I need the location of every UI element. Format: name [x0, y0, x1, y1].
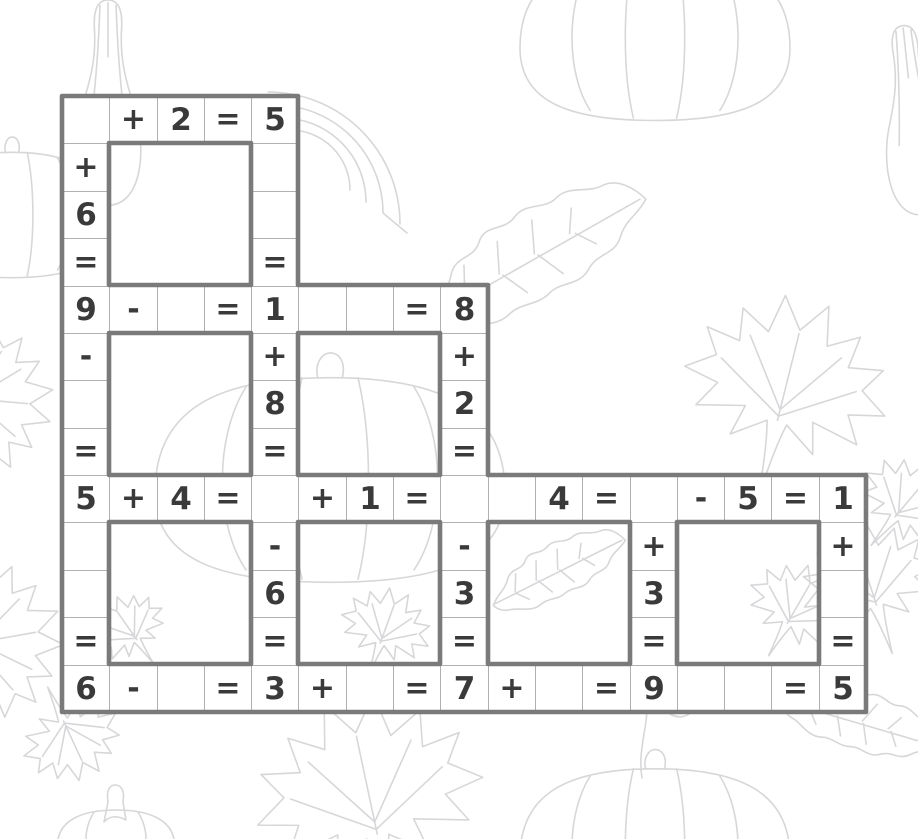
cell-r12-c4: 3 [251, 665, 299, 713]
cell-r1-c4-answer-blank[interactable] [251, 143, 299, 192]
cell-r7-c4: = [251, 428, 299, 476]
cell-r9-c12: + [630, 522, 678, 571]
cell-r4-c4: 1 [251, 286, 299, 334]
cell-r4-c1: - [109, 286, 158, 334]
cell-r5-c4: + [251, 333, 299, 381]
cell-r10-c8: 3 [440, 570, 489, 618]
cell-r0-c4: 5 [251, 96, 299, 144]
cell-r12-c3: = [204, 665, 252, 713]
cell-r8-c1: + [109, 475, 158, 523]
cell-r8-c11: = [582, 475, 631, 523]
cell-r12-c11: = [582, 665, 631, 713]
cell-r6-c0-answer-blank[interactable] [62, 380, 110, 429]
cell-r12-c0: 6 [62, 665, 110, 713]
cell-r4-c6-answer-blank[interactable] [346, 286, 394, 334]
cell-r3-c0: = [62, 238, 110, 287]
worksheet-page: +2=5+6==9-=1=8-++82===5+4=+1=4=-5=1--++6… [0, 0, 918, 839]
cell-r0-c3: = [204, 96, 252, 144]
cell-r9-c0-answer-blank[interactable] [62, 522, 110, 571]
cell-r7-c8: = [440, 428, 489, 476]
cell-r8-c12-answer-blank[interactable] [630, 475, 678, 523]
cell-r12-c13-answer-blank[interactable] [677, 665, 725, 713]
cell-r9-c4: - [251, 522, 299, 571]
cell-r12-c9: + [488, 665, 536, 713]
cell-r10-c16-answer-blank[interactable] [819, 570, 867, 618]
cell-r12-c8: 7 [440, 665, 489, 713]
cell-r8-c0: 5 [62, 475, 110, 523]
cell-r10-c12: 3 [630, 570, 678, 618]
cell-r8-c15: = [771, 475, 820, 523]
cell-r6-c4: 8 [251, 380, 299, 429]
cell-r8-c10: 4 [535, 475, 583, 523]
cell-r12-c1: - [109, 665, 158, 713]
cell-r12-c10-answer-blank[interactable] [535, 665, 583, 713]
cell-r12-c5: + [298, 665, 347, 713]
cell-r12-c14-answer-blank[interactable] [724, 665, 772, 713]
cell-r0-c2: 2 [157, 96, 205, 144]
cell-r8-c6: 1 [346, 475, 394, 523]
cell-r0-c0-answer-blank[interactable] [62, 96, 110, 144]
cell-r8-c3: = [204, 475, 252, 523]
cell-r9-c8: - [440, 522, 489, 571]
cell-r4-c8: 8 [440, 286, 489, 334]
cell-r0-c1: + [109, 96, 158, 144]
cell-r6-c8: 2 [440, 380, 489, 429]
cell-r2-c4-answer-blank[interactable] [251, 191, 299, 239]
cell-r12-c16: 5 [819, 665, 867, 713]
cell-r8-c9-answer-blank[interactable] [488, 475, 536, 523]
cell-r12-c6-answer-blank[interactable] [346, 665, 394, 713]
cell-r8-c16: 1 [819, 475, 867, 523]
cell-r9-c16: + [819, 522, 867, 571]
cell-r11-c8: = [440, 617, 489, 666]
cell-r8-c8-answer-blank[interactable] [440, 475, 489, 523]
cell-r5-c8: + [440, 333, 489, 381]
cell-r12-c7: = [393, 665, 441, 713]
cell-r4-c7: = [393, 286, 441, 334]
cell-r11-c12: = [630, 617, 678, 666]
cell-r5-c0: - [62, 333, 110, 381]
cell-r12-c15: = [771, 665, 820, 713]
cell-r4-c3: = [204, 286, 252, 334]
cell-r7-c0: = [62, 428, 110, 476]
cell-r8-c13: - [677, 475, 725, 523]
cell-r8-c2: 4 [157, 475, 205, 523]
cell-r3-c4: = [251, 238, 299, 287]
cell-r10-c4: 6 [251, 570, 299, 618]
cell-r8-c14: 5 [724, 475, 772, 523]
cell-r2-c0: 6 [62, 191, 110, 239]
cell-r11-c0: = [62, 617, 110, 666]
cell-r11-c16: = [819, 617, 867, 666]
cell-r8-c4-answer-blank[interactable] [251, 475, 299, 523]
cell-r4-c0: 9 [62, 286, 110, 334]
cell-r4-c5-answer-blank[interactable] [298, 286, 347, 334]
cell-r11-c4: = [251, 617, 299, 666]
cell-r10-c0-answer-blank[interactable] [62, 570, 110, 618]
cell-r8-c5: + [298, 475, 347, 523]
cell-r12-c12: 9 [630, 665, 678, 713]
cell-r8-c7: = [393, 475, 441, 523]
cell-r4-c2-answer-blank[interactable] [157, 286, 205, 334]
cell-r1-c0: + [62, 143, 110, 192]
cell-r12-c2-answer-blank[interactable] [157, 665, 205, 713]
